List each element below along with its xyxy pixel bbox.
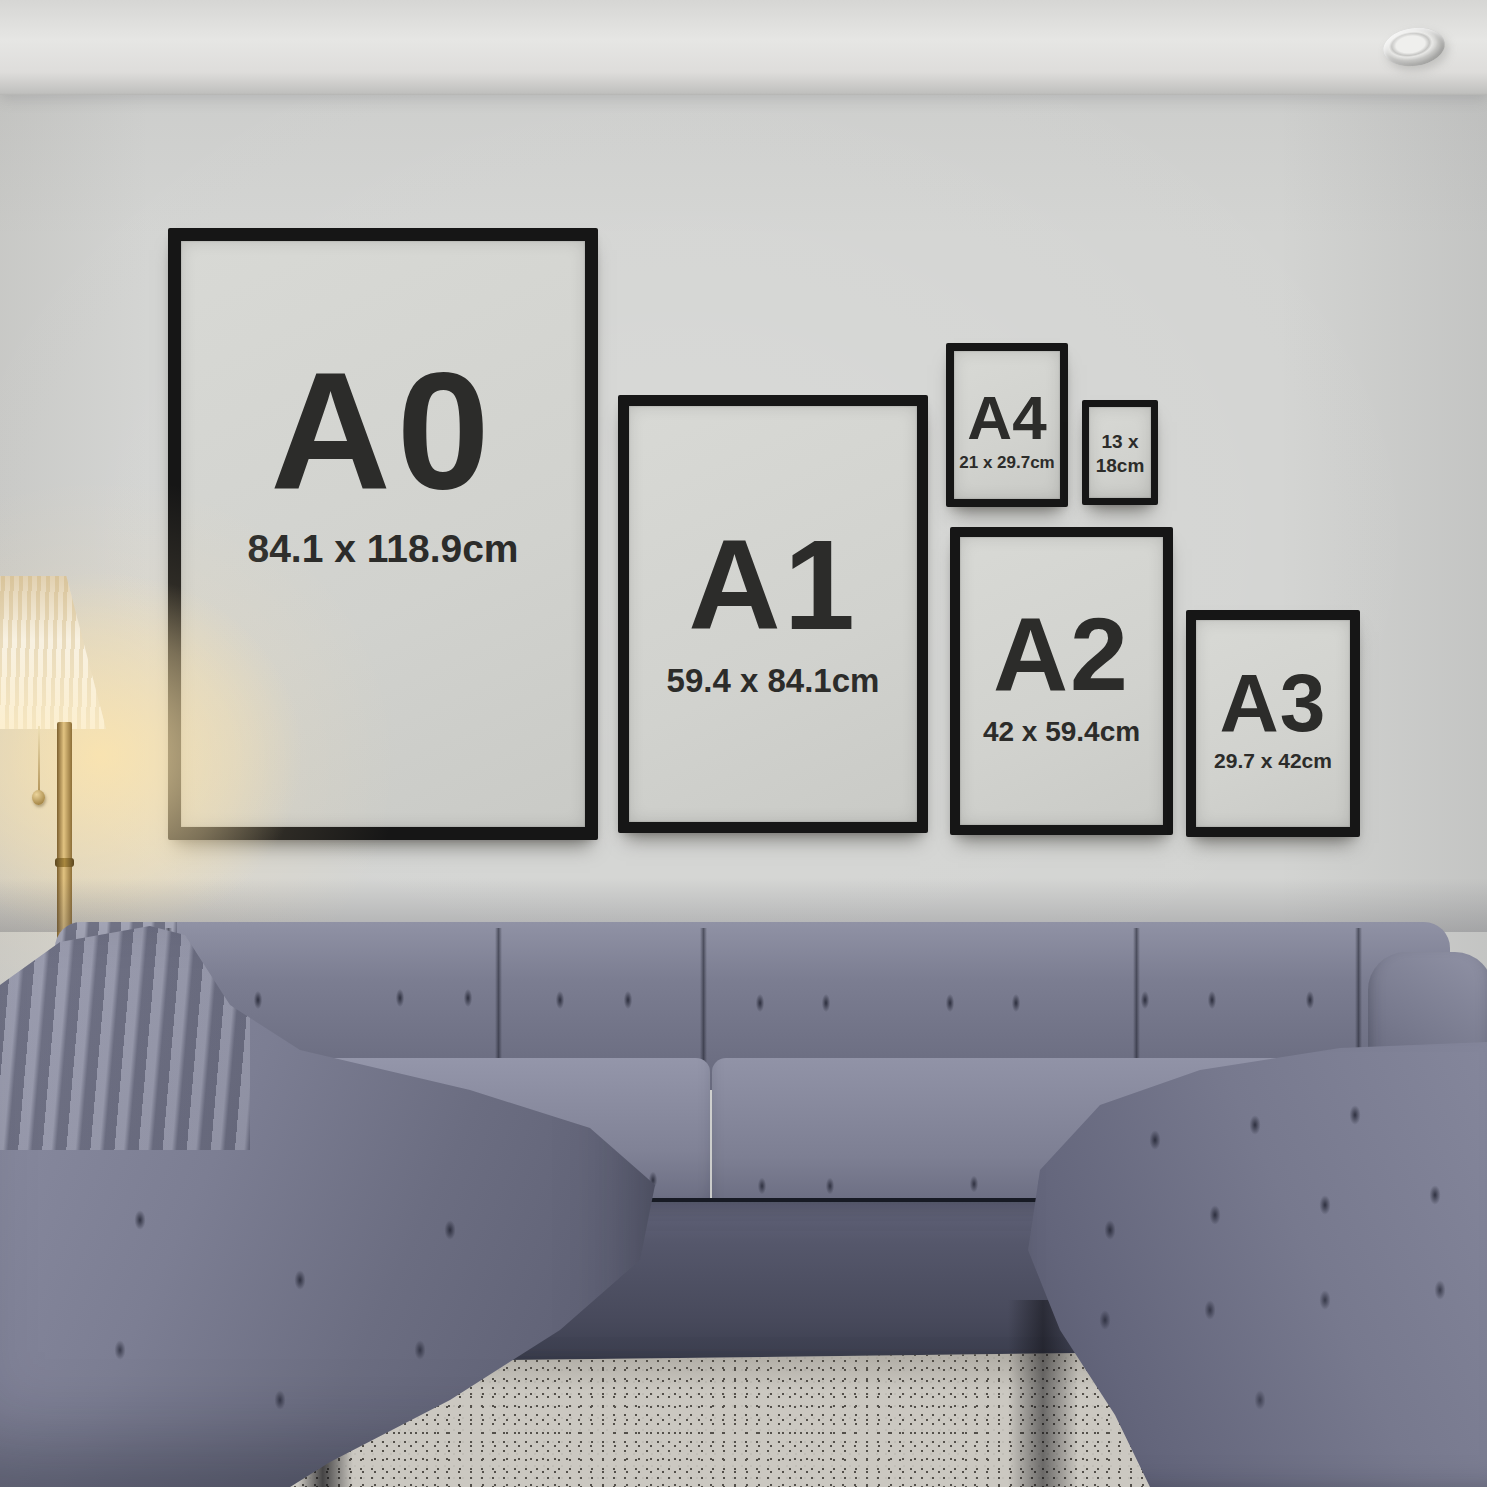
frame-a3: A3 29.7 x 42cm [1186,610,1360,837]
frame-a4-label: A4 [967,389,1046,447]
frame-a2: A2 42 x 59.4cm [950,527,1173,835]
frame-13x18: 13 x 18cm [1082,400,1158,505]
frame-a1-label: A1 [688,525,858,645]
lamp-chain-bead [32,790,45,805]
frame-a3-label: A3 [1220,664,1327,741]
frame-a2-size: 42 x 59.4cm [983,718,1140,746]
lamp-pull-chain [38,726,40,792]
frame-a0-label: A0 [270,352,495,509]
frame-a0-poster: A0 84.1 x 118.9cm [181,241,585,827]
frame-a0: A0 84.1 x 118.9cm [168,228,598,840]
living-room-scene: A0 84.1 x 118.9cm A1 59.4 x 84.1cm A4 21… [0,0,1487,1487]
frame-13x18-size-line1: 13 x [1102,430,1139,454]
ceiling [0,0,1487,95]
frame-a4: A4 21 x 29.7cm [946,343,1068,507]
frame-a4-size: 21 x 29.7cm [959,454,1054,471]
frame-a1-size: 59.4 x 84.1cm [667,664,880,697]
frame-a3-size: 29.7 x 42cm [1214,750,1332,771]
frame-13x18-poster: 13 x 18cm [1089,407,1151,498]
frame-a1-poster: A1 59.4 x 84.1cm [629,406,917,822]
frame-a1: A1 59.4 x 84.1cm [618,395,928,833]
frame-a4-poster: A4 21 x 29.7cm [954,351,1060,499]
frame-a2-label: A2 [993,606,1130,704]
frame-a0-size: 84.1 x 118.9cm [247,529,518,568]
frame-a2-poster: A2 42 x 59.4cm [960,537,1163,825]
frame-13x18-size-line2: 18cm [1096,454,1145,478]
lamp-pole-joint [55,858,74,867]
frame-a3-poster: A3 29.7 x 42cm [1196,620,1350,827]
